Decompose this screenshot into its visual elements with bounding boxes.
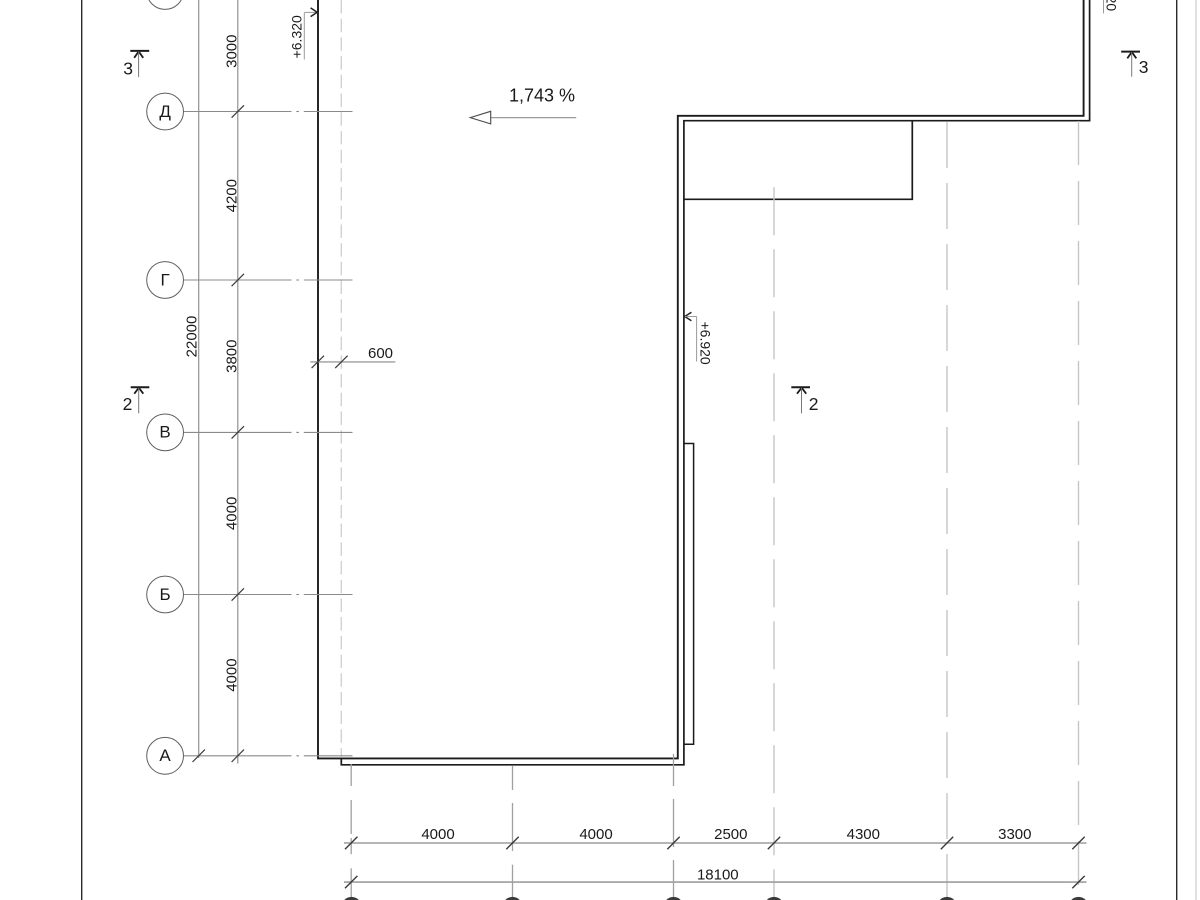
svg-text:В: В <box>159 423 170 442</box>
svg-text:2: 2 <box>123 394 133 414</box>
svg-text:3: 3 <box>1139 57 1149 77</box>
svg-text:3000: 3000 <box>223 35 240 68</box>
svg-text:2: 2 <box>809 394 819 414</box>
svg-text:4200: 4200 <box>223 179 240 212</box>
svg-text:3300: 3300 <box>998 826 1031 843</box>
svg-text:1,743 %: 1,743 % <box>509 86 575 106</box>
svg-text:+6.320: +6.320 <box>288 15 304 58</box>
svg-text:2500: 2500 <box>714 826 747 843</box>
svg-text:4300: 4300 <box>847 826 880 843</box>
svg-text:3: 3 <box>123 59 133 79</box>
svg-text:4000: 4000 <box>223 658 240 691</box>
svg-text:Г: Г <box>160 270 169 289</box>
svg-text:3800: 3800 <box>223 340 240 373</box>
svg-text:Д: Д <box>159 102 171 121</box>
svg-text:+6.920: +6.920 <box>698 322 714 365</box>
svg-text:4000: 4000 <box>421 826 454 843</box>
svg-text:600: 600 <box>368 345 393 362</box>
svg-text:22000: 22000 <box>184 316 201 358</box>
svg-text:Б: Б <box>160 585 171 604</box>
svg-text:4000: 4000 <box>223 497 240 530</box>
svg-text:+6.320: +6.320 <box>1103 0 1119 11</box>
svg-text:4000: 4000 <box>579 826 612 843</box>
svg-text:18100: 18100 <box>697 866 739 883</box>
svg-text:А: А <box>159 746 171 765</box>
